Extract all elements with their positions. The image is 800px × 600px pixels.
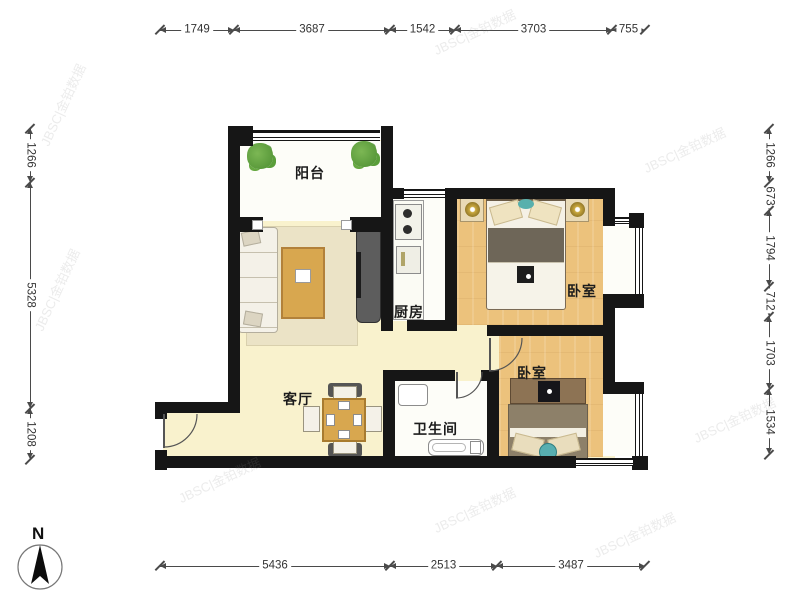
room-label-living: 客厅 <box>283 389 313 409</box>
room-label-bedroom-bottom: 卧室 <box>517 363 547 383</box>
bathroom-door-arc <box>456 372 482 398</box>
dimension-segment: 3487 <box>497 559 645 573</box>
dimension-label: 1534 <box>763 406 776 438</box>
dimension-label: 1794 <box>763 232 776 264</box>
dimension-label: 1208 <box>24 418 37 450</box>
entry-door-arc <box>164 414 197 447</box>
dimension-segment: 3687 <box>234 23 390 37</box>
dimension-label: 3487 <box>555 560 587 573</box>
dimension-segment: 1266 <box>23 128 37 182</box>
compass-needle-icon <box>31 545 49 584</box>
dimension-label: 5436 <box>259 560 291 573</box>
dimension-segment: 1208 <box>23 408 37 459</box>
dimension-label: 1749 <box>181 24 213 37</box>
dimension-label: 3687 <box>296 24 328 37</box>
floorplan-canvas: 阳台 客厅 厨房 卧室 卧室 卫生间 N 1749368715423703755… <box>0 0 800 600</box>
dimension-label: 2513 <box>428 560 460 573</box>
overlay-arcs <box>0 0 800 600</box>
dimension-segment: 3703 <box>455 23 612 37</box>
dimension-label: 1266 <box>24 139 37 171</box>
compass-north-label: N <box>32 524 44 544</box>
dimension-segment: 1749 <box>160 23 234 37</box>
dimension-label: 1542 <box>407 24 439 37</box>
dimension-segment: 1534 <box>762 389 776 454</box>
dimension-label: 755 <box>616 24 641 37</box>
room-label-bedroom-top: 卧室 <box>567 281 597 301</box>
dimension-segment: 5328 <box>23 182 37 408</box>
room-label-balcony: 阳台 <box>295 163 325 183</box>
dimension-segment: 5436 <box>160 559 390 573</box>
dimension-label: 1703 <box>763 337 776 369</box>
dimension-label: 1266 <box>763 139 776 171</box>
dimension-label: 5328 <box>24 279 37 311</box>
room-label-bathroom: 卫生间 <box>413 419 458 439</box>
dimension-segment: 1794 <box>762 210 776 286</box>
dimension-label: 3703 <box>518 24 550 37</box>
dimension-segment: 1266 <box>762 128 776 182</box>
dimension-label: 712 <box>763 288 776 313</box>
room-label-kitchen: 厨房 <box>394 302 424 322</box>
dimension-segment: 1703 <box>762 316 776 389</box>
dimension-segment: 1542 <box>390 23 455 37</box>
dimension-segment: 2513 <box>390 559 497 573</box>
